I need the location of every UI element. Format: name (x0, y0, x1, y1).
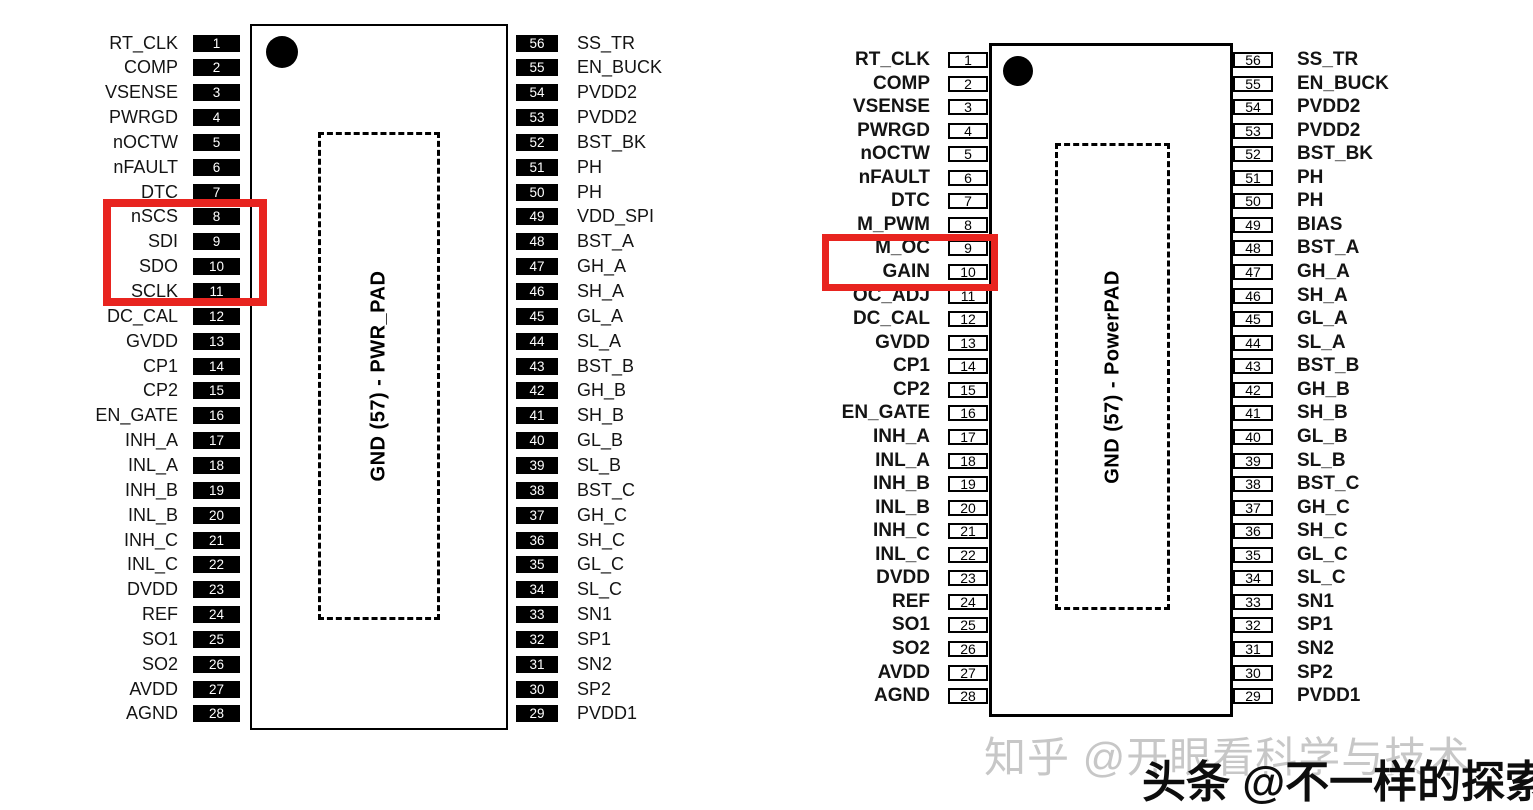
pin-label: DVDD (876, 567, 930, 589)
pin-number-box: 1 (948, 52, 988, 68)
pin-number-box: 6 (948, 170, 988, 186)
pin-row-ph: 50PH (1233, 190, 1323, 212)
pin-row-comp: COMP2 (0, 73, 988, 95)
pin-row-ph: 51PH (1233, 167, 1323, 189)
pin-row-sl_b: 39SL_B (1233, 450, 1346, 472)
pin-row-noctw: nOCTW5 (0, 143, 988, 165)
pin-number-box: 31 (1233, 641, 1273, 657)
pin-row-gh_c: 37GH_C (1233, 497, 1350, 519)
pin-number-box: 22 (948, 547, 988, 563)
pin-number-box: 44 (1233, 335, 1273, 351)
pin-row-vsense: VSENSE3 (0, 96, 988, 118)
pin-row-sl_c: 34SL_C (1233, 567, 1346, 589)
pin-row-bst_c: 38BST_C (1233, 473, 1359, 495)
pin-label: PVDD2 (1297, 96, 1360, 118)
pin-row-inh_c: INH_C21 (0, 520, 988, 542)
pin-row-bst_b: 43BST_B (1233, 355, 1359, 377)
pin-number-box: 2 (948, 76, 988, 92)
pin-label: PH (1297, 167, 1323, 189)
pin-number-box: 16 (948, 405, 988, 421)
pin-row-inl_a: INL_A18 (0, 450, 988, 472)
pin-label: GH_C (1297, 497, 1350, 519)
pin-label: BST_C (1297, 473, 1359, 495)
pin-row-cp2: CP215 (0, 379, 988, 401)
pin-row-so2: SO226 (0, 638, 988, 660)
pin-number-box: 30 (1233, 665, 1273, 681)
pin-row-gh_b: 42GH_B (1233, 379, 1350, 401)
pin-label: SH_A (1297, 285, 1348, 307)
pin-row-gl_b: 40GL_B (1233, 426, 1348, 448)
pin-number-box: 28 (948, 688, 988, 704)
pin-number-box: 51 (1233, 170, 1273, 186)
pin-row-avdd: AVDD27 (0, 662, 988, 684)
pin-number-box: 48 (1233, 240, 1273, 256)
pin-number-box: 45 (1233, 311, 1273, 327)
pin-label: DTC (891, 190, 930, 212)
pin-row-so1: SO125 (0, 614, 988, 636)
pin-number-box: 54 (1233, 99, 1273, 115)
pin-number-box: 3 (948, 99, 988, 115)
pin-number-box: 29 (1233, 688, 1273, 704)
pin-number-box: 53 (1233, 123, 1273, 139)
pin-number-box: 13 (948, 335, 988, 351)
pin-label: PWRGD (857, 120, 930, 142)
pin-row-cp1: CP114 (0, 355, 988, 377)
pin-label: BST_A (1297, 237, 1359, 259)
pin-row-pvdd2: 53PVDD2 (1233, 120, 1360, 142)
pin-label: INL_A (875, 450, 930, 472)
pin-row-sh_c: 36SH_C (1233, 520, 1348, 542)
power-pad-outline: GND (57) - PowerPAD (1055, 143, 1170, 610)
pin-label: GH_B (1297, 379, 1350, 401)
pin1-indicator-dot (1003, 56, 1033, 86)
pin-number-box: 33 (1233, 594, 1273, 610)
pin-label: AGND (874, 685, 930, 707)
pin-number-box: 50 (1233, 193, 1273, 209)
power-pad-label: GND (57) - PowerPAD (1101, 270, 1124, 484)
pin-row-bias: 49BIAS (1233, 214, 1342, 236)
pin-label: SL_A (1297, 332, 1346, 354)
pin-label: INH_B (873, 473, 930, 495)
pin-label: SL_C (1297, 567, 1346, 589)
pin-number-box: 47 (1233, 264, 1273, 280)
pin-label: SO1 (892, 614, 930, 636)
pin-row-en_gate: EN_GATE16 (0, 402, 988, 424)
pin-number-box: 14 (948, 358, 988, 374)
pin-number-box: 15 (948, 382, 988, 398)
pin-number-box: 8 (948, 217, 988, 233)
pin-row-pvdd2: 54PVDD2 (1233, 96, 1360, 118)
pin-row-inh_a: INH_A17 (0, 426, 988, 448)
pin-number-box: 17 (948, 429, 988, 445)
pin-number-box: 55 (1233, 76, 1273, 92)
pin-label: nFAULT (859, 167, 930, 189)
pin-number-box: 21 (948, 523, 988, 539)
pin-label: GVDD (875, 332, 930, 354)
pin-row-gvdd: GVDD13 (0, 332, 988, 354)
pin-label: SN1 (1297, 591, 1334, 613)
pin-row-gl_c: 35GL_C (1233, 544, 1348, 566)
pin-label: CP1 (893, 355, 930, 377)
pin-number-box: 19 (948, 476, 988, 492)
pin-label: PH (1297, 190, 1323, 212)
pin-number-box: 49 (1233, 217, 1273, 233)
pin-row-dvdd: DVDD23 (0, 567, 988, 589)
pin-row-inl_c: INL_C22 (0, 544, 988, 566)
pin-label: VSENSE (853, 96, 930, 118)
pin-number-box: 38 (1233, 476, 1273, 492)
pin-label: M_PWM (857, 214, 930, 236)
pin-number-box: 46 (1233, 288, 1273, 304)
highlight-box-mode-pins (822, 234, 998, 291)
pin-row-ref: REF24 (0, 591, 988, 613)
pin-row-pwrgd: PWRGD4 (0, 120, 988, 142)
pin-label: SP2 (1297, 662, 1333, 684)
pin-row-sp2: 30SP2 (1233, 662, 1333, 684)
pin-label: BIAS (1297, 214, 1342, 236)
pin-label: DC_CAL (853, 308, 930, 330)
pin-label: EN_BUCK (1297, 73, 1389, 95)
pin-label: EN_GATE (842, 402, 930, 424)
pin-number-box: 39 (1233, 453, 1273, 469)
pin-label: RT_CLK (855, 49, 930, 71)
pin-number-box: 18 (948, 453, 988, 469)
pin-label: INH_A (873, 426, 930, 448)
pin-row-ss_tr: 56SS_TR (1233, 49, 1358, 71)
pin-label: SS_TR (1297, 49, 1358, 71)
pin-label: GH_A (1297, 261, 1350, 283)
pin-label: INH_C (873, 520, 930, 542)
pin-row-sh_b: 41SH_B (1233, 402, 1348, 424)
pin-row-sn1: 33SN1 (1233, 591, 1334, 613)
pin-row-pvdd1: 29PVDD1 (1233, 685, 1360, 707)
pin-label: COMP (873, 73, 930, 95)
pin-number-box: 7 (948, 193, 988, 209)
pin-label: BST_B (1297, 355, 1359, 377)
pin-row-rt_clk: RT_CLK1 (0, 49, 988, 71)
pin-row-inh_b: INH_B19 (0, 473, 988, 495)
pin-label: SO2 (892, 638, 930, 660)
pin-label: INL_B (875, 497, 930, 519)
pin-number-box: 32 (1233, 617, 1273, 633)
pin-row-agnd: AGND28 (0, 685, 988, 707)
pin-number-box: 56 (1233, 52, 1273, 68)
pin-label: AVDD (878, 662, 930, 684)
pin-row-sh_a: 46SH_A (1233, 285, 1348, 307)
pin-row-gl_a: 45GL_A (1233, 308, 1348, 330)
pin-number-box: 40 (1233, 429, 1273, 445)
pin-row-sp1: 32SP1 (1233, 614, 1333, 636)
pin-label: SL_B (1297, 450, 1346, 472)
pin-label: PVDD1 (1297, 685, 1360, 707)
pin-number-box: 23 (948, 570, 988, 586)
pin-number-box: 4 (948, 123, 988, 139)
pin-row-m_pwm: M_PWM8 (0, 214, 988, 236)
pin-row-sn2: 31SN2 (1233, 638, 1334, 660)
pin-row-dtc: DTC7 (0, 190, 988, 212)
pin-label: GL_A (1297, 308, 1348, 330)
pin-label: CP2 (893, 379, 930, 401)
pin-row-inl_b: INL_B20 (0, 497, 988, 519)
pin-number-box: 42 (1233, 382, 1273, 398)
pin-number-box: 12 (948, 311, 988, 327)
pin-label: nOCTW (860, 143, 930, 165)
pin-number-box: 28 (193, 705, 240, 722)
pin-label: GL_B (1297, 426, 1348, 448)
pin-label: REF (892, 591, 930, 613)
pin-label: SH_C (1297, 520, 1348, 542)
pin-number-box: 25 (948, 617, 988, 633)
pin-number-box: 26 (948, 641, 988, 657)
pin-number-box: 43 (1233, 358, 1273, 374)
pin-label: SH_B (1297, 402, 1348, 424)
pin-number-box: 24 (948, 594, 988, 610)
pin-row-bst_a: 48BST_A (1233, 237, 1359, 259)
pin-label: BST_BK (1297, 143, 1373, 165)
page: GND (57) - PWR_PAD RT_CLK1COMP2VSENSE3PW… (0, 0, 1533, 810)
pin-label: GL_C (1297, 544, 1348, 566)
pin-number-box: 41 (1233, 405, 1273, 421)
pin-number-box: 37 (1233, 500, 1273, 516)
pin-label: SP1 (1297, 614, 1333, 636)
pin-row-en_buck: 55EN_BUCK (1233, 73, 1389, 95)
pin-number-box: 29 (516, 705, 558, 722)
pin-number-box: 27 (948, 665, 988, 681)
pin-row-sl_a: 44SL_A (1233, 332, 1346, 354)
pin-number-box: 5 (948, 146, 988, 162)
pin-row-nfault: nFAULT6 (0, 167, 988, 189)
pin-row-gh_a: 47GH_A (1233, 261, 1350, 283)
pin-row-dc_cal: DC_CAL12 (0, 308, 988, 330)
pin-label: PVDD2 (1297, 120, 1360, 142)
watermark-toutiao: 头条 @不一样的探索 (1142, 746, 1533, 810)
pin-number-box: 20 (948, 500, 988, 516)
pin-label: SN2 (1297, 638, 1334, 660)
pin-number-box: 36 (1233, 523, 1273, 539)
pin-number-box: 34 (1233, 570, 1273, 586)
pin-number-box: 35 (1233, 547, 1273, 563)
pin-label: INL_C (875, 544, 930, 566)
pin-row-bst_bk: 52BST_BK (1233, 143, 1373, 165)
pin-number-box: 52 (1233, 146, 1273, 162)
